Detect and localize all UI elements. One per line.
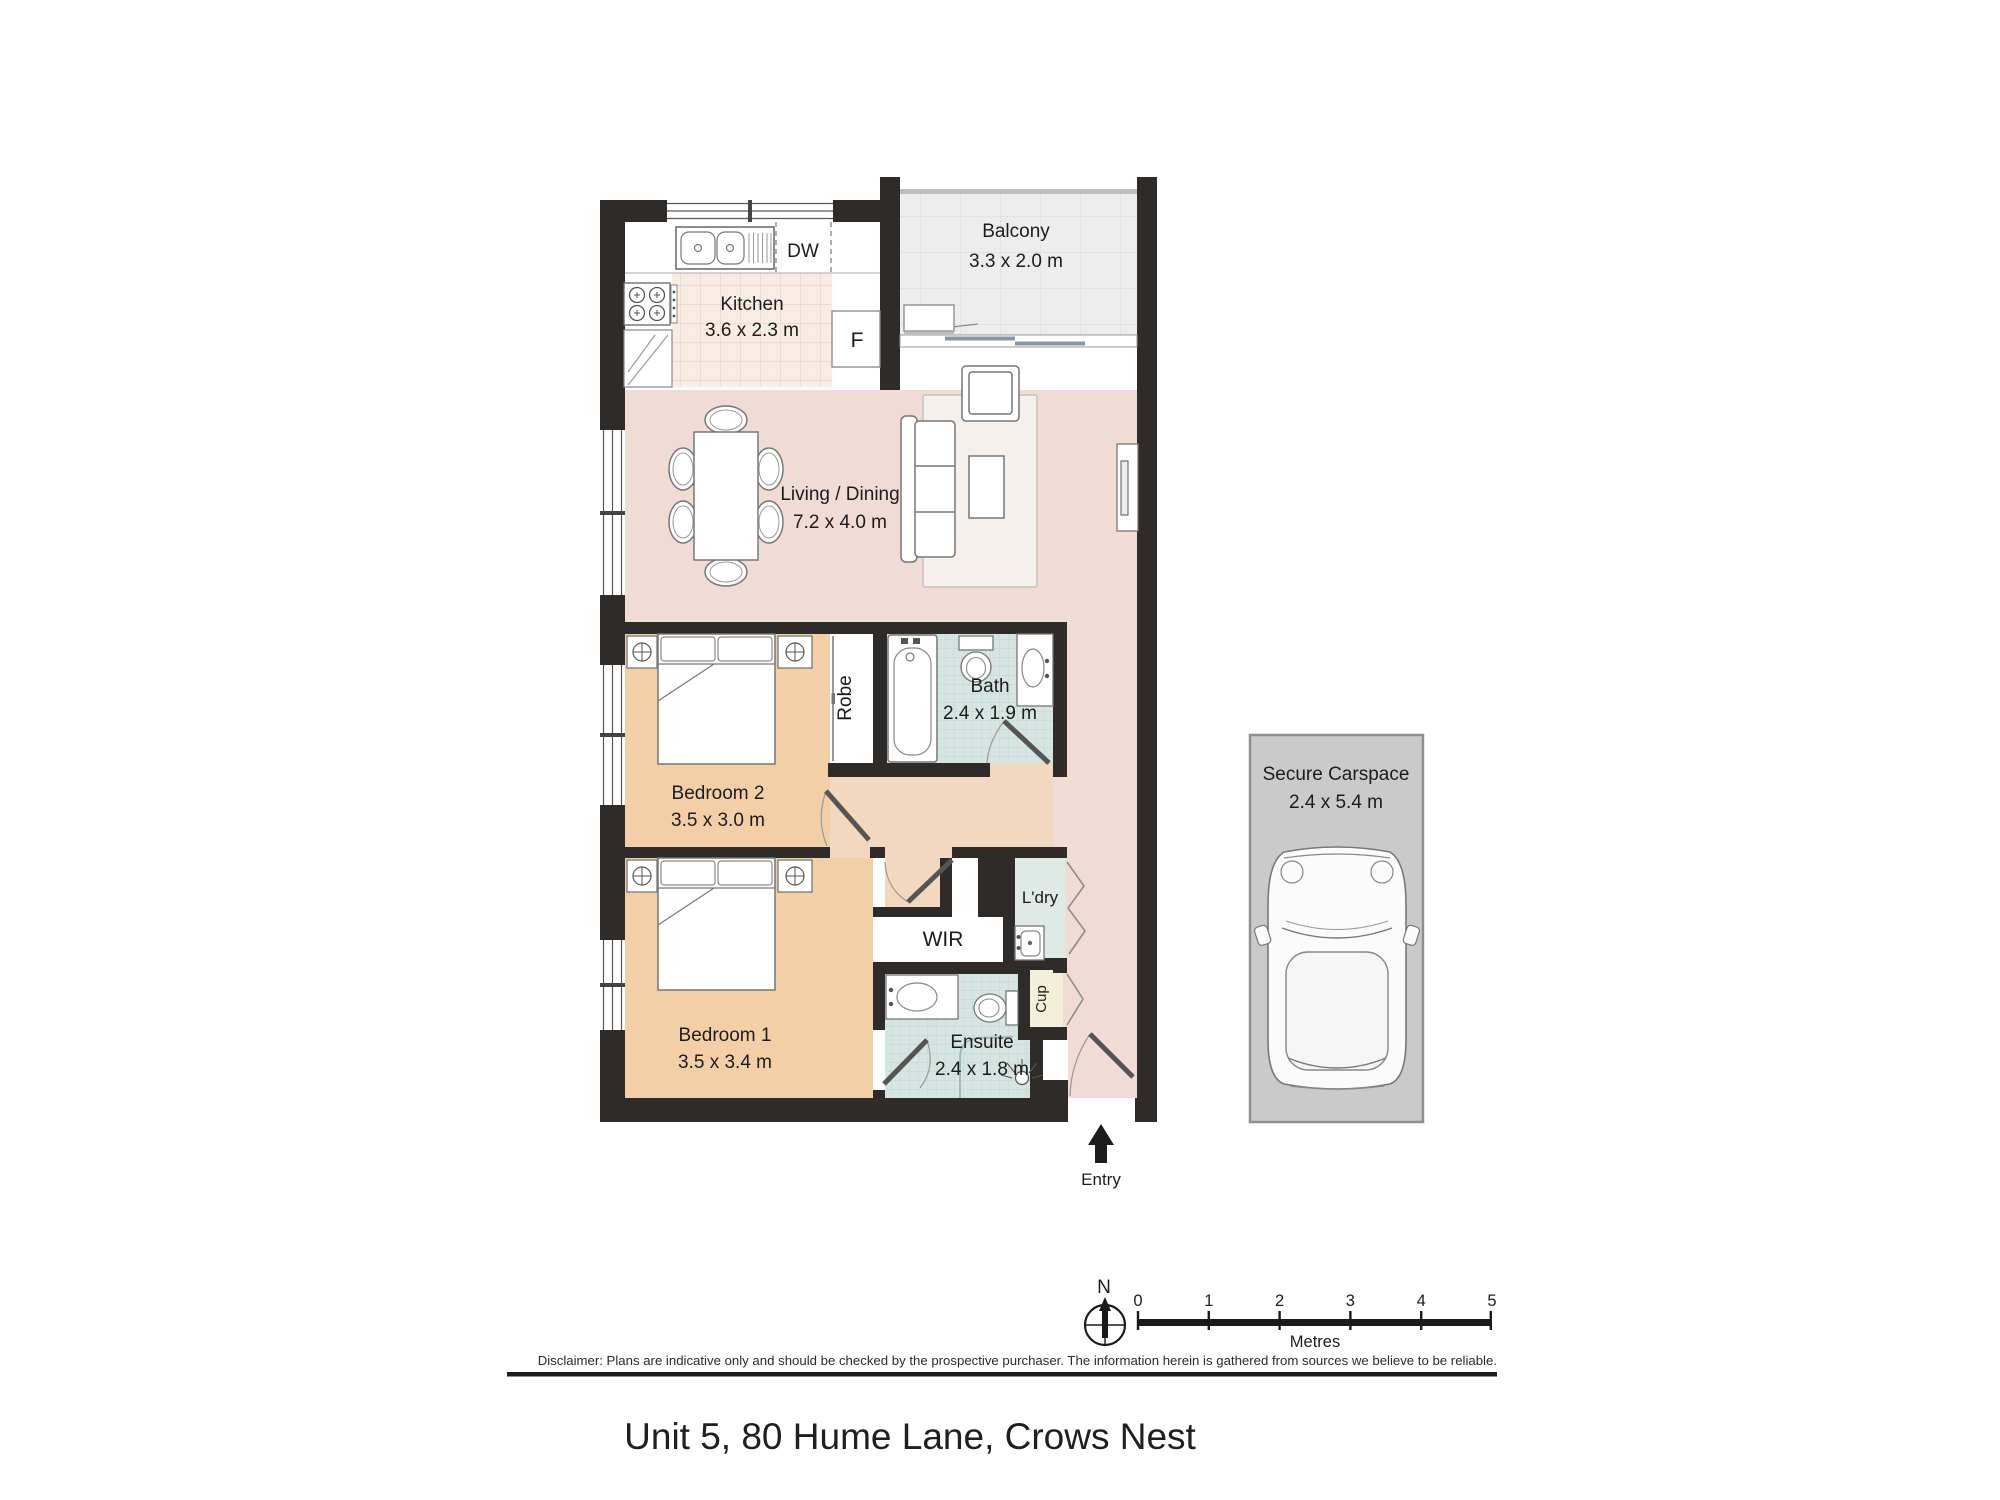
- room-dims-ensuite: 2.4 x 1.8 m: [935, 1059, 1029, 1080]
- room-label-bedroom1: Bedroom 1: [679, 1025, 772, 1046]
- balcony-balustrade: [900, 189, 1137, 194]
- north-compass-icon: N: [1085, 1277, 1125, 1345]
- dishwasher-label: DW: [787, 241, 819, 262]
- floor-plan-page: DW F Kitchen 3.6 x 2.3 m Balcony: [0, 0, 2000, 1500]
- wall-hall-seg1: [870, 847, 885, 858]
- scale-tick-3: 3: [1346, 1292, 1355, 1310]
- bathtub-icon: [888, 635, 937, 762]
- armchair-icon: [962, 366, 1019, 421]
- bedroom2-doorway-floor: [830, 847, 870, 858]
- entry-arrow-icon: [1088, 1124, 1114, 1163]
- scale-bar-line: [1138, 1319, 1492, 1326]
- window-bedroom1-left: [600, 940, 625, 1030]
- room-label-robe: Robe: [835, 675, 856, 720]
- window-kitchen-top: [667, 200, 833, 222]
- disclaimer-text: Disclaimer: Plans are indicative only an…: [538, 1353, 1497, 1368]
- page-title: Unit 5, 80 Hume Lane, Crows Nest: [624, 1416, 1196, 1457]
- wall-bath-bottom: [828, 763, 990, 777]
- wir-nook-floor: [952, 858, 978, 917]
- wall-bath-right: [1053, 622, 1067, 777]
- wall-laundry-left: [1003, 858, 1015, 958]
- scale-tick-0: 0: [1133, 1292, 1142, 1310]
- pantry-icon: [624, 330, 672, 387]
- room-label-bedroom2: Bedroom 2: [672, 783, 765, 804]
- car-icon: [1254, 847, 1421, 1089]
- wall-bed2-bottom: [625, 847, 830, 858]
- tv-unit-icon: [1117, 444, 1138, 531]
- scale-bar: 0 1 2 3 4 5 Metres: [1133, 1292, 1496, 1351]
- laundry-tub-icon: [1015, 926, 1044, 960]
- room-dims-bedroom2: 3.5 x 3.0 m: [671, 810, 765, 831]
- carspace: Secure Carspace 2.4 x 5.4 m: [1250, 735, 1423, 1122]
- coffee-table-icon: [969, 456, 1004, 518]
- entry-label: Entry: [1081, 1170, 1121, 1189]
- room-dims-bedroom1: 3.5 x 3.4 m: [678, 1052, 772, 1073]
- north-label: N: [1097, 1277, 1111, 1298]
- room-label-carspace: Secure Carspace: [1263, 764, 1410, 785]
- room-label-ensuite: Ensuite: [950, 1032, 1013, 1053]
- room-label-laundry: L'dry: [1022, 888, 1059, 907]
- room-dims-carspace: 2.4 x 5.4 m: [1289, 792, 1383, 813]
- bedroom1-doorway-floor: [885, 847, 952, 858]
- room-dims-balcony: 3.3 x 2.0 m: [969, 251, 1063, 272]
- scale-tick-2: 2: [1275, 1292, 1284, 1310]
- wall-right: [1137, 177, 1157, 1122]
- sofa-icon: [901, 416, 955, 562]
- vanity-icon-ensuite: [886, 975, 958, 1019]
- wall-corridor-seg1: [1053, 958, 1067, 973]
- sink-icon: [676, 227, 774, 269]
- scale-unit-label: Metres: [1290, 1333, 1340, 1351]
- vanity-icon-bath: [1017, 634, 1053, 706]
- wall-wir-bottom: [873, 962, 1030, 974]
- room-label-bath: Bath: [970, 676, 1009, 697]
- planter-icon: [904, 305, 954, 333]
- window-bedroom2-left: [600, 665, 625, 805]
- wall-ensuite-left-upper: [873, 974, 885, 1030]
- wall-corridor-seg2: [1053, 1027, 1067, 1040]
- wall-wir-nook-right: [978, 858, 1003, 917]
- room-label-wir: WIR: [923, 928, 964, 951]
- wall-balcony-divider: [880, 177, 900, 390]
- fridge-label: F: [851, 329, 864, 352]
- entry-opening: [1068, 1098, 1135, 1122]
- window-living-left: [600, 430, 625, 595]
- floor-plan-canvas: DW F Kitchen 3.6 x 2.3 m Balcony: [0, 0, 2000, 1500]
- wall-cup-left: [1018, 970, 1030, 1027]
- room-label-kitchen: Kitchen: [720, 294, 783, 315]
- footer-divider: [507, 1372, 1497, 1377]
- wall-living-bed2: [625, 622, 1053, 634]
- room-label-living: Living / Dining: [780, 484, 899, 505]
- scale-tick-1: 1: [1204, 1292, 1213, 1310]
- toilet-icon-ensuite: [974, 991, 1018, 1025]
- wall-wir-top: [873, 907, 952, 917]
- room-dims-kitchen: 3.6 x 2.3 m: [705, 320, 799, 341]
- room-label-balcony: Balcony: [982, 221, 1050, 242]
- wall-entry-nib: [1043, 1080, 1068, 1122]
- stove-icon: [624, 283, 677, 325]
- room-dims-living: 7.2 x 4.0 m: [793, 512, 887, 533]
- fridge-icon: F: [832, 311, 880, 367]
- room-dims-bath: 2.4 x 1.9 m: [943, 703, 1037, 724]
- entry: Entry: [1081, 1124, 1121, 1189]
- wall-robe-bath: [873, 634, 887, 763]
- room-label-cupboard: Cup: [1033, 985, 1050, 1013]
- scale-tick-4: 4: [1417, 1292, 1426, 1310]
- scale-tick-5: 5: [1487, 1292, 1496, 1310]
- wall-ensuite-left-lower: [873, 1090, 885, 1098]
- wall-hall-seg2: [952, 847, 1067, 858]
